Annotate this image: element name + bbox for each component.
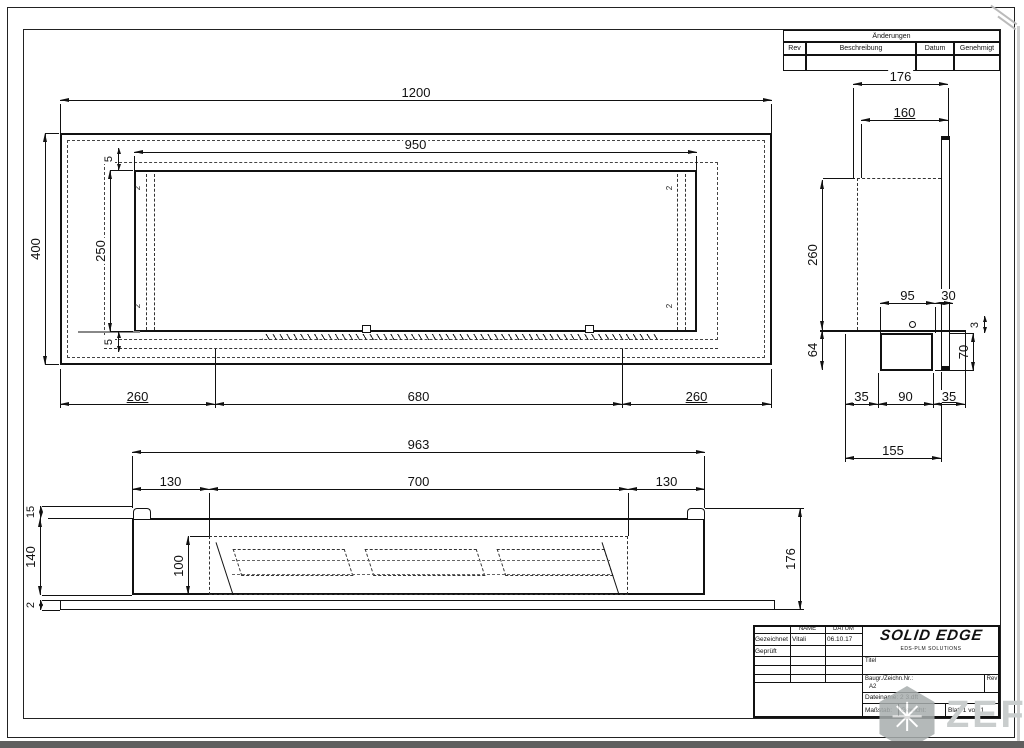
dim-side-gap: 3 [984, 316, 985, 333]
extension-line [134, 156, 135, 170]
revision-col-approved-label: Genehmigt [960, 45, 994, 52]
front-corner-thickness: 2 [134, 304, 142, 308]
extension-line [60, 104, 61, 133]
revision-col-approved: Genehmigt [954, 42, 1000, 55]
extension-line [46, 133, 59, 134]
title-sheet-size: A2 [869, 684, 889, 691]
extension-line [42, 600, 60, 601]
dim-side-offset-right: 35 [933, 404, 965, 405]
extension-line [622, 349, 623, 408]
dim-side-box-height: 70 [973, 333, 974, 371]
side-pivot-symbol [909, 321, 916, 328]
front-glass-edge-left [146, 174, 147, 330]
extension-line [948, 88, 949, 136]
dim-label: 100 [172, 553, 185, 579]
extension-line [861, 124, 862, 178]
dim-bottom-flange-height: 15 [40, 506, 41, 518]
side-burner-box [880, 333, 933, 371]
revision-empty-cell [783, 55, 806, 71]
title-row-drawn: Gezeichnet [755, 636, 790, 643]
bottom-burner-slot [233, 549, 354, 576]
extension-line [965, 330, 966, 408]
dim-side-lower-height: 64 [822, 330, 823, 370]
dim-side-upper-height: 260 [822, 180, 823, 330]
title-block-line [862, 656, 1000, 657]
dim-bottom-opening-width: 700 [209, 489, 628, 490]
dim-label: 680 [406, 390, 432, 403]
dim-label: 5 [104, 337, 115, 347]
title-block-line [862, 692, 1000, 693]
dim-label: 70 [957, 343, 970, 361]
title-block-line [753, 682, 862, 683]
title-block-line [753, 665, 862, 666]
dim-front-right-offset: 260 [622, 404, 771, 405]
dim-label: 176 [888, 70, 914, 83]
extension-line [60, 369, 61, 408]
revision-empty-cell [916, 55, 954, 71]
page-edge-shadow-bottom [0, 741, 1024, 748]
zefire-watermark-text: ZEFIRE [946, 694, 1024, 737]
title-block-line [753, 633, 862, 634]
dim-label: 130 [158, 475, 184, 488]
page-edge-shadow-right [1017, 26, 1020, 742]
dim-label: 963 [406, 438, 432, 451]
dim-label: 3 [970, 319, 981, 329]
bottom-burner-slot [497, 549, 614, 576]
front-corner-thickness: 2 [134, 186, 142, 190]
title-block-line [753, 656, 862, 657]
extension-line [771, 369, 772, 408]
dim-front-opening-height: 250 [110, 170, 111, 332]
dim-label: 15 [26, 504, 37, 520]
extension-line [705, 508, 804, 509]
extension-line [42, 610, 60, 611]
title-col-name: NAME [790, 626, 825, 633]
front-glass-edge-right [685, 174, 686, 330]
revision-col-rev: Rev [783, 42, 806, 55]
front-opening [134, 170, 697, 332]
extension-line [704, 456, 705, 508]
extension-line [853, 88, 854, 178]
revision-col-date: Datum [916, 42, 954, 55]
bottom-slot-line [232, 560, 610, 561]
dim-label: 2 [26, 600, 37, 610]
extension-line [935, 307, 936, 333]
dim-label: 700 [406, 475, 432, 488]
dim-label: 260 [125, 390, 151, 403]
title-drawn-date: 06.10.17 [827, 636, 862, 643]
dim-label: 160 [892, 106, 918, 119]
dim-side-offset-left: 35 [845, 404, 878, 405]
dim-label: 35 [940, 390, 958, 403]
dim-front-opening-width: 950 [134, 152, 697, 153]
dim-bottom-total-height: 176 [800, 508, 801, 610]
dim-bottom-plate-thickness: 2 [40, 600, 41, 610]
extension-line [771, 104, 772, 133]
dim-front-overall-width: 1200 [60, 100, 772, 101]
dim-label: 400 [29, 236, 42, 262]
dim-label: 30 [939, 289, 957, 302]
extension-line [209, 493, 210, 536]
dim-side-depth-inner: 160 [861, 120, 948, 121]
dim-label: 1200 [400, 86, 433, 99]
extension-line [48, 518, 132, 519]
bottom-burner-slot [365, 549, 486, 576]
extension-line [950, 333, 973, 334]
title-block-line [753, 645, 862, 646]
front-clip-left [362, 325, 371, 333]
dim-label: 950 [403, 138, 429, 151]
dim-front-left-offset: 260 [60, 404, 215, 405]
extension-line [190, 594, 209, 595]
extension-line [215, 349, 216, 408]
title-block-line [753, 674, 862, 675]
side-back-panel [941, 136, 950, 370]
drawing-sheet: Änderungen Rev Beschreibung Datum Genehm… [0, 0, 1024, 748]
extension-line [190, 536, 209, 537]
dim-side-depth-total: 176 [853, 84, 948, 85]
revision-empty-cell [954, 55, 1000, 71]
dim-bottom-opening-depth: 100 [188, 536, 189, 595]
bottom-slot-line [232, 574, 610, 575]
side-dashed-top [857, 178, 941, 179]
title-titel-label: Titel [865, 658, 905, 665]
bottom-base-plate [60, 600, 775, 610]
front-corner-thickness: 2 [666, 304, 674, 308]
dim-side-box-span: 90 [878, 404, 933, 405]
dim-label: 35 [852, 390, 870, 403]
title-drawn-name: Vitali [792, 636, 825, 643]
extension-line [935, 370, 973, 371]
extension-line [878, 373, 879, 408]
extension-line [933, 373, 934, 408]
dim-label: 90 [896, 390, 914, 403]
dim-label: 260 [684, 390, 710, 403]
dim-side-panel-width: 30 [935, 303, 953, 304]
dim-label: 95 [898, 289, 916, 302]
front-bottom-dashed [104, 348, 718, 349]
bottom-tab-left [133, 508, 151, 519]
solid-edge-logo-sub: EDS-PLM SOLUTIONS [862, 646, 1000, 653]
dim-front-gap-top: 5 [118, 148, 119, 170]
title-drawing-no-label: Baugr./Zeichn.Nr.: [865, 676, 975, 683]
dim-label: 64 [806, 341, 819, 359]
extension-line [42, 506, 133, 507]
side-mounting-line [820, 330, 966, 332]
extension-line [775, 609, 804, 610]
title-block-line [862, 674, 1000, 675]
front-clip-right [585, 325, 594, 333]
dim-label: 260 [806, 242, 819, 268]
extension-line [941, 372, 942, 462]
dim-front-gap-bottom: 5 [118, 332, 119, 352]
extension-line [823, 178, 855, 179]
dim-label: 176 [784, 546, 797, 572]
side-dashed-left [857, 178, 858, 330]
front-bottom-hatch [262, 334, 658, 340]
extension-line [880, 307, 881, 333]
bottom-tab-right [687, 508, 705, 519]
dim-label: 140 [24, 544, 37, 570]
revision-col-rev-label: Rev [788, 45, 800, 52]
extension-line [628, 493, 629, 536]
dim-label: 5 [104, 154, 115, 164]
extension-line [696, 156, 697, 170]
solid-edge-logo: SOLID EDGE [879, 628, 984, 645]
pinwheel-icon: ✳ [890, 698, 924, 738]
dim-side-base-depth: 155 [845, 458, 941, 459]
front-glass-edge-right [677, 174, 678, 330]
title-row-checked: Geprüft [755, 648, 790, 655]
extension-line [42, 595, 132, 596]
dim-side-burner-width: 95 [880, 303, 935, 304]
revision-col-description: Beschreibung [806, 42, 916, 55]
dim-bottom-right-offset: 130 [628, 489, 705, 490]
front-glass-edge-left [154, 174, 155, 330]
extension-line [111, 170, 133, 171]
extension-line [845, 334, 846, 462]
dim-bottom-body-depth: 140 [40, 518, 41, 595]
dim-label: 130 [654, 475, 680, 488]
title-rev-label: Rev [984, 676, 1000, 683]
revision-table-title: Änderungen [783, 30, 1000, 42]
extension-line [132, 456, 133, 508]
title-col-date: DATUM [825, 626, 862, 633]
extension-line [111, 331, 133, 332]
dim-label: 250 [94, 238, 107, 264]
dim-bottom-left-offset: 130 [132, 489, 209, 490]
dim-label: 155 [880, 444, 906, 457]
revision-col-date-label: Datum [925, 45, 946, 52]
revision-table-title-label: Änderungen [872, 33, 910, 40]
extension-line [46, 364, 59, 365]
front-corner-thickness: 2 [666, 186, 674, 190]
dim-front-center-span: 680 [215, 404, 622, 405]
dim-bottom-body-width: 963 [132, 452, 705, 453]
dim-front-overall-height: 400 [45, 133, 46, 365]
revision-col-description-label: Beschreibung [840, 45, 883, 52]
